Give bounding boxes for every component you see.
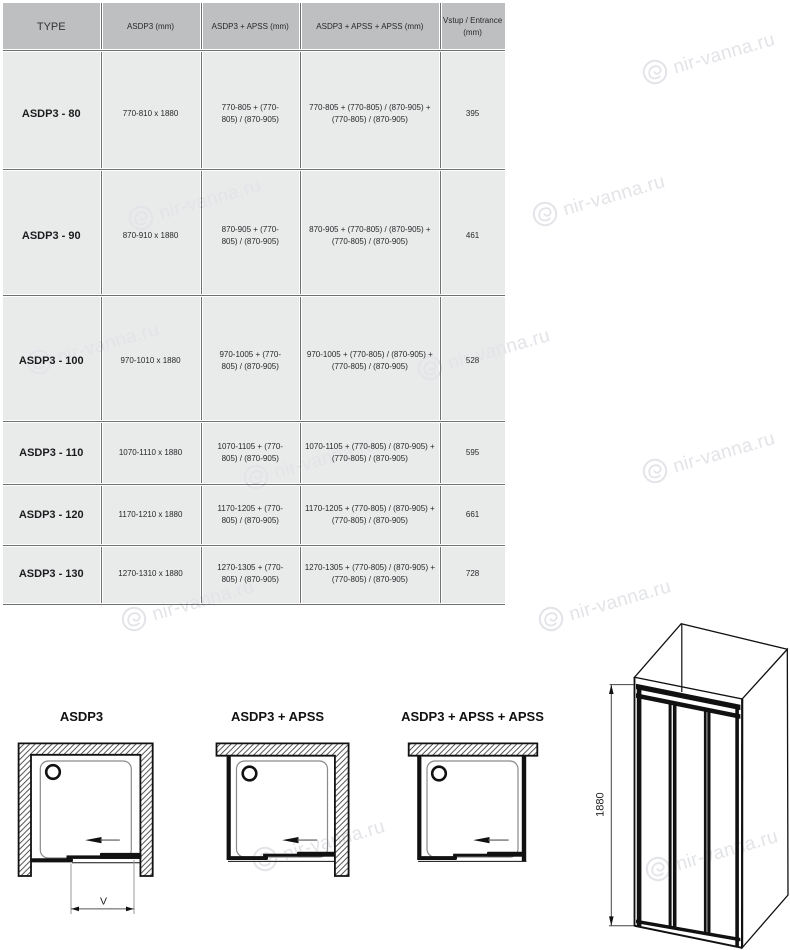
svg-text:ASDP3 + APSS + APSS: ASDP3 + APSS + APSS	[401, 709, 544, 724]
svg-text:ASDP3 + APSS: ASDP3 + APSS	[231, 709, 324, 724]
svg-text:V: V	[100, 896, 107, 908]
svg-text:1880: 1880	[595, 792, 607, 816]
svg-text:ASDP3: ASDP3	[60, 709, 103, 724]
